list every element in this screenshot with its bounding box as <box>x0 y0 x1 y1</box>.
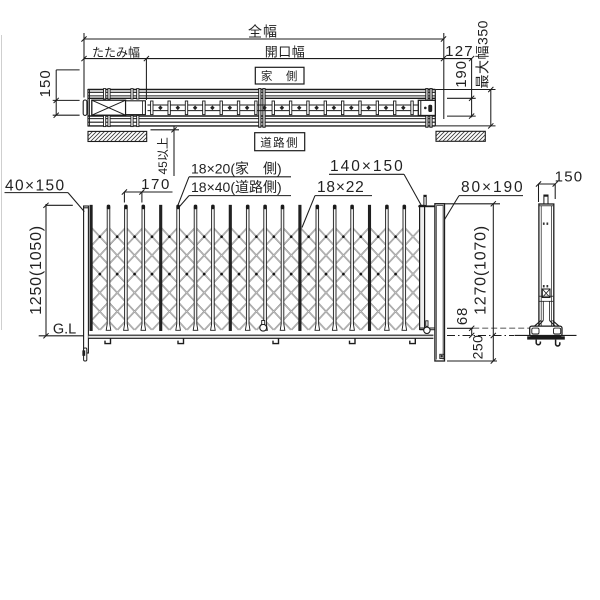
svg-text:たたみ幅: たたみ幅 <box>92 45 140 60</box>
svg-text:家 側: 家 側 <box>261 69 299 83</box>
svg-text:80×190: 80×190 <box>461 179 525 196</box>
svg-text:127: 127 <box>445 43 474 60</box>
svg-text:G.L: G.L <box>53 322 76 338</box>
svg-text:道路側: 道路側 <box>260 136 299 150</box>
svg-text:68: 68 <box>454 307 471 325</box>
svg-text:40×150: 40×150 <box>5 178 66 195</box>
svg-text:開口幅: 開口幅 <box>265 45 306 60</box>
svg-text:1250(1050): 1250(1050) <box>28 225 45 315</box>
svg-text:全幅: 全幅 <box>248 24 278 40</box>
svg-text:最大幅350: 最大幅350 <box>475 20 491 88</box>
svg-text:18×22: 18×22 <box>317 179 365 196</box>
svg-text:150: 150 <box>37 69 54 97</box>
svg-text:1270(1070): 1270(1070) <box>473 225 490 315</box>
svg-text:140×150: 140×150 <box>330 158 405 175</box>
svg-text:18×40(道路側): 18×40(道路側) <box>191 179 282 195</box>
svg-text:150: 150 <box>555 169 584 186</box>
svg-text:170: 170 <box>141 176 171 193</box>
svg-text:45以上: 45以上 <box>156 137 170 174</box>
svg-text:250: 250 <box>470 335 486 360</box>
svg-text:190: 190 <box>453 60 470 87</box>
svg-text:18×20(家 側): 18×20(家 側) <box>191 160 282 176</box>
